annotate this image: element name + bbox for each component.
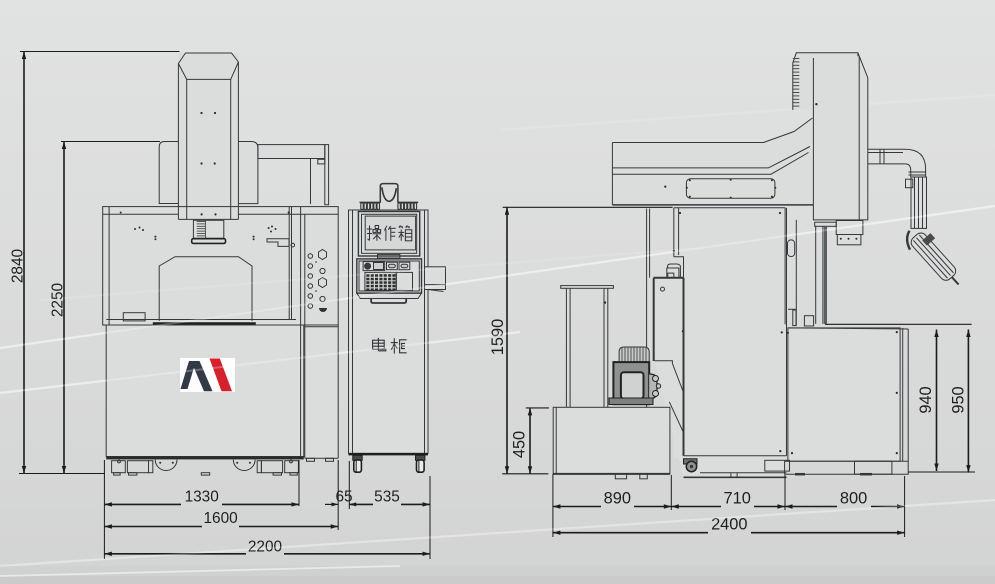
svg-text:890: 890 [604, 490, 631, 508]
svg-text:65: 65 [335, 489, 352, 506]
svg-text:450: 450 [511, 431, 529, 458]
svg-text:1590: 1590 [489, 319, 507, 355]
svg-text:1600: 1600 [203, 510, 237, 527]
svg-text:535: 535 [374, 489, 400, 506]
svg-text:2840: 2840 [10, 249, 27, 283]
svg-text:1330: 1330 [185, 489, 219, 506]
svg-text:940: 940 [917, 386, 935, 413]
svg-text:800: 800 [840, 490, 867, 508]
svg-text:950: 950 [950, 386, 968, 413]
svg-text:710: 710 [724, 490, 751, 508]
